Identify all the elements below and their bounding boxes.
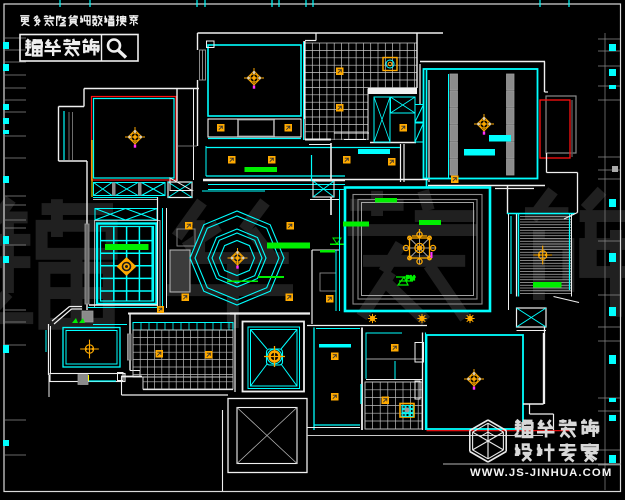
svg-text:WWW.JS-JINHUA.COM: WWW.JS-JINHUA.COM [470,467,612,479]
svg-text:PM: PM [406,276,415,282]
